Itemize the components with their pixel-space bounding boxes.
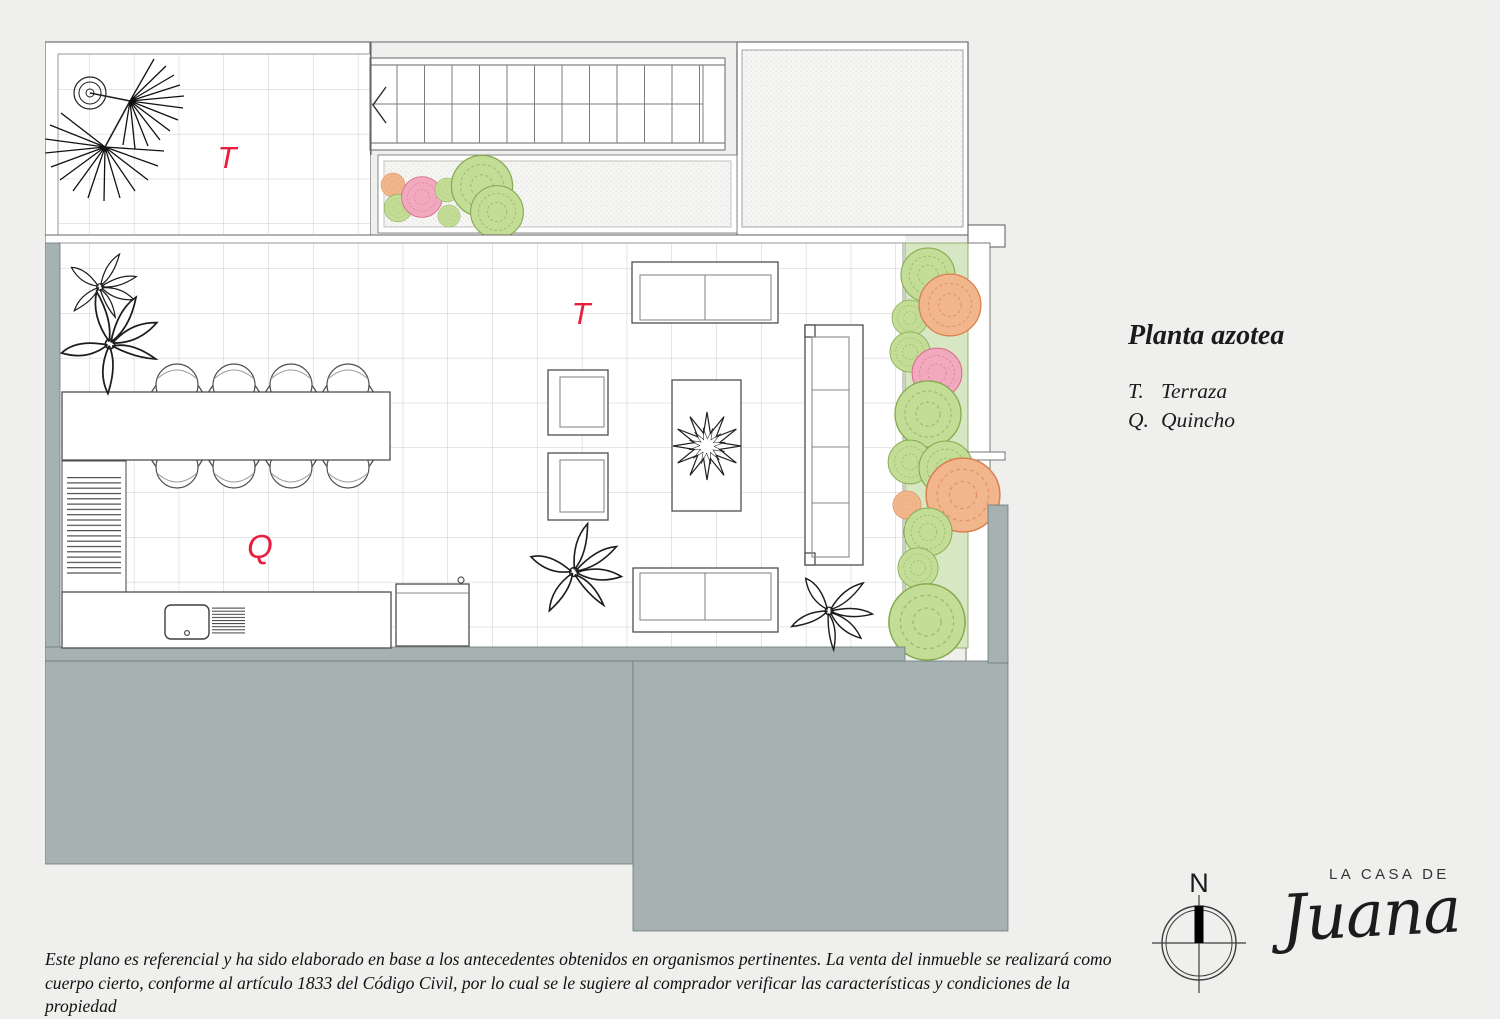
legend-key: Q.: [1128, 406, 1161, 435]
north-compass-icon: N: [1146, 862, 1252, 1000]
upper-roof-zone: [737, 42, 1005, 247]
legend: T. Terraza Q. Quincho: [1128, 377, 1235, 435]
disclaimer: Este plano es referencial y ha sido elab…: [45, 948, 1115, 1019]
page-title: Planta azotea: [1128, 320, 1284, 352]
sink: [165, 605, 209, 639]
page: { "page": { "background": "#efefed" }, "…: [0, 0, 1500, 1004]
zone-label-terrace-upper: T: [218, 140, 239, 175]
sofa-top: [632, 262, 778, 323]
stair-planter-strip: [378, 155, 737, 238]
disclaimer-line-2: cuerpo cierto, conforme al artículo 1833…: [45, 972, 1115, 1019]
disclaimer-line-1: Este plano es referencial y ha sido elab…: [45, 948, 1115, 972]
compass-north-label: N: [1189, 868, 1209, 898]
armchair-2: [548, 453, 608, 520]
staircase: [370, 58, 725, 150]
grill: [212, 607, 245, 635]
legend-item-terraza: T. Terraza: [1128, 377, 1235, 406]
legend-item-quincho: Q. Quincho: [1128, 406, 1235, 435]
bbq-knob: [458, 577, 464, 583]
legend-label: Terraza: [1161, 377, 1227, 406]
legend-label: Quincho: [1161, 406, 1235, 435]
side-planter-bed: [888, 243, 1005, 663]
zone-label-quincho: Q: [247, 528, 273, 565]
armchair-1: [548, 370, 608, 435]
coffee-table: [672, 380, 741, 511]
sofa-bottom: [633, 568, 778, 632]
sofa-right: [805, 325, 863, 565]
zone-label-terrace-main: T: [572, 296, 593, 331]
bottom-wall: [45, 647, 905, 661]
left-wall: [45, 243, 60, 648]
floor-plan: T T Q: [45, 40, 1010, 935]
legend-key: T.: [1128, 377, 1161, 406]
right-wall: [988, 505, 1008, 663]
dining-table: [62, 392, 390, 460]
brand-logo-script: Juana: [1279, 873, 1462, 956]
